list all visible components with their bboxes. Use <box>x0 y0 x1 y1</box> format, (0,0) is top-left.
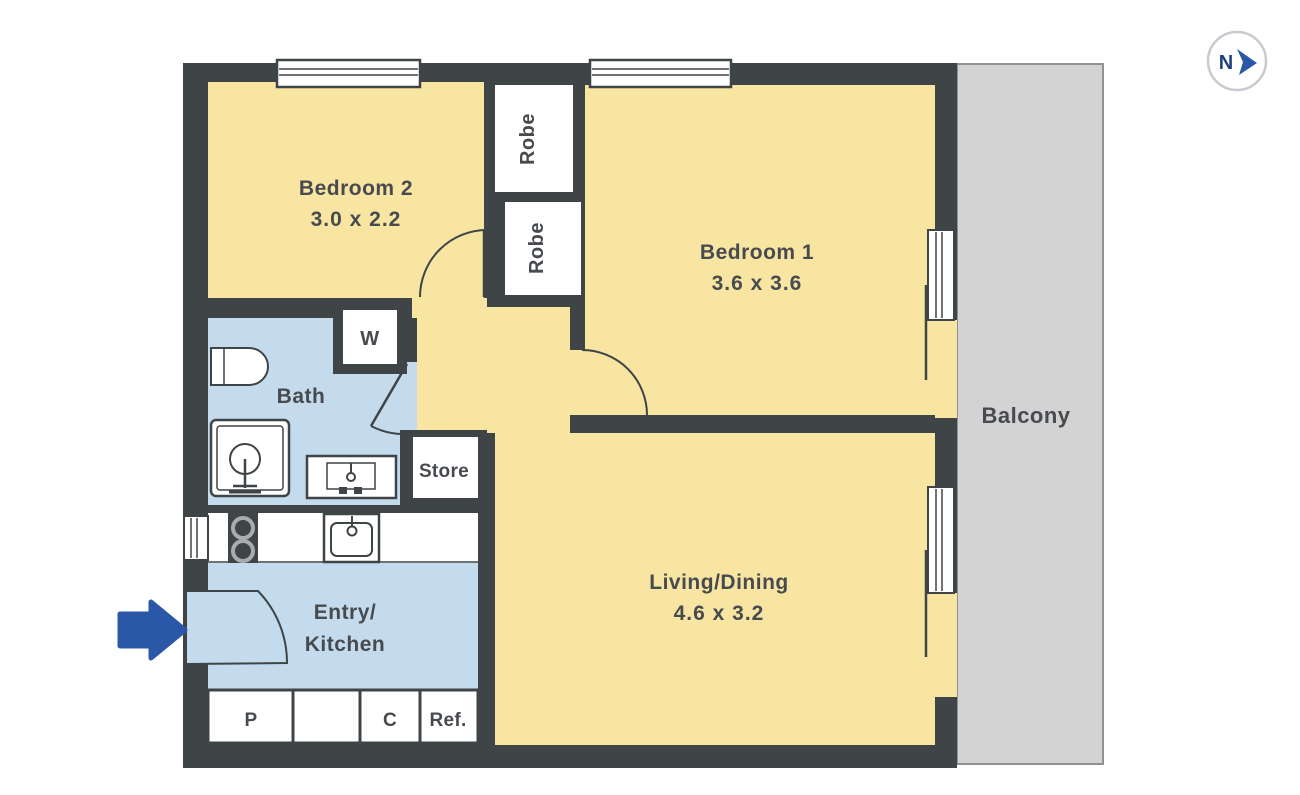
bath-label: Bath <box>277 385 326 408</box>
cooktop-icon <box>228 513 258 563</box>
entry-kitchen-label-line1: Entry/ <box>314 601 377 624</box>
entry-kitchen-label-line2: Kitchen <box>305 633 386 656</box>
bedroom2-dims: 3.0 x 2.2 <box>311 208 402 231</box>
compass-n-label: N <box>1219 52 1233 74</box>
pantry-label: P <box>245 710 258 731</box>
washer-label: W <box>360 328 379 350</box>
window-bedroom1-balcony-icon <box>928 230 954 320</box>
entry-arrow-icon <box>120 602 185 658</box>
window-bedroom1-icon <box>590 60 731 87</box>
window-living-balcony-icon <box>928 487 954 593</box>
hallway-right <box>487 307 570 433</box>
north-compass: N <box>1208 32 1266 90</box>
living-dining-dims: 4.6 x 3.2 <box>674 602 765 625</box>
bedroom1-door-opening <box>570 350 585 415</box>
vanity-sink-icon <box>307 456 396 498</box>
robe-bottom-label: Robe <box>526 222 548 274</box>
living-dining-label: Living/Dining <box>649 571 788 594</box>
balcony-label: Balcony <box>981 403 1070 428</box>
shower-icon <box>211 420 289 496</box>
robe-top-label: Robe <box>517 113 539 165</box>
store-label: Store <box>419 461 469 482</box>
compass-circle <box>1208 32 1266 90</box>
slider-opening-bedroom1 <box>935 320 957 418</box>
floor-plan-page: N Bedroom 2 3.0 x 2.2 Bedroom 1 3.6 x 3.… <box>0 0 1300 795</box>
toilet-icon <box>211 348 268 385</box>
slider-opening-living <box>935 593 957 697</box>
bedroom1-dims: 3.6 x 3.6 <box>712 272 803 295</box>
cupboard-label: C <box>383 710 397 731</box>
bedroom1-label: Bedroom 1 <box>700 241 814 264</box>
fridge-label: Ref. <box>429 710 466 731</box>
window-bedroom2-icon <box>277 60 420 87</box>
bedroom2-door-opening <box>412 298 487 318</box>
kitchen-sink-icon <box>324 514 379 562</box>
window-kitchen-icon <box>184 516 208 560</box>
hallway-left <box>417 318 487 430</box>
floor-plan: N Bedroom 2 3.0 x 2.2 Bedroom 1 3.6 x 3.… <box>0 0 1300 795</box>
bedroom2-label: Bedroom 2 <box>299 177 413 200</box>
